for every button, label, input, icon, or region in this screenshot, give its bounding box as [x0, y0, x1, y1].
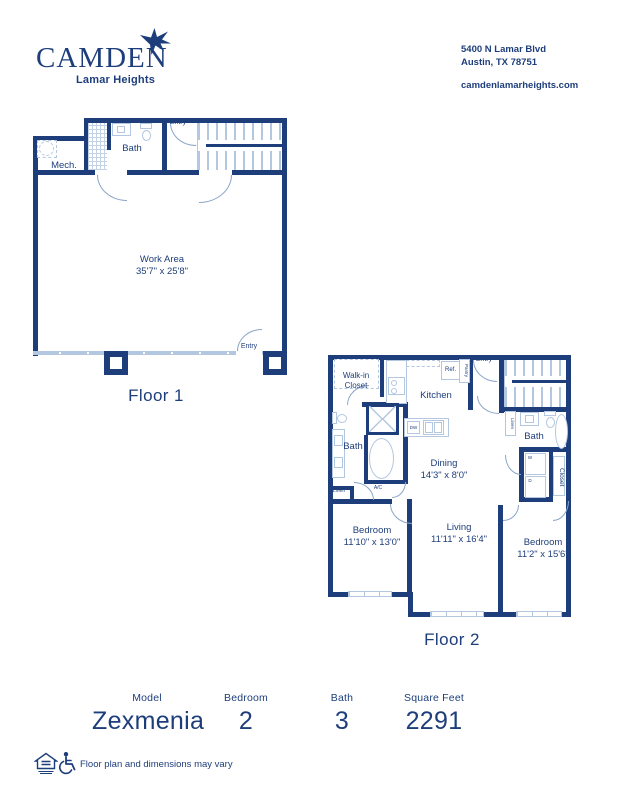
burner — [391, 388, 397, 394]
toilet-tank — [544, 411, 556, 416]
sink-basin — [334, 457, 343, 468]
washer-label: W — [526, 455, 534, 460]
bedroom-label: Bedroom 11'10" x 13'0" — [326, 525, 418, 548]
dining-dims: 14'3" x 8'0" — [404, 470, 484, 482]
window — [430, 611, 484, 617]
dining-name: Dining — [404, 458, 484, 470]
floor2-plan: Ref. Pantry DW Linen W D Closet — [0, 0, 618, 660]
floor-plan-sheet: CAMDEN Lamar Heights 5400 N Lamar Blvd A… — [0, 0, 618, 800]
bath-label: Bath — [338, 441, 368, 453]
pantry-label: Pantry — [460, 360, 469, 382]
stair-rail — [512, 380, 566, 383]
dining-label: Dining 14'3" x 8'0" — [404, 458, 484, 481]
toilet-bowl — [337, 414, 347, 423]
bedroom1-name: Bedroom — [326, 525, 418, 537]
door-arc — [503, 505, 519, 521]
kitchen-label: Kitchen — [404, 390, 468, 402]
sqft-value: 2291 — [392, 707, 476, 736]
burner — [391, 380, 397, 386]
door-arc — [477, 396, 499, 414]
door-arc — [505, 455, 521, 475]
bath-label: Bath — [306, 692, 378, 704]
bathtub — [369, 438, 394, 479]
wall — [566, 355, 571, 617]
bedroom1-dims: 11'10" x 13'0" — [326, 537, 418, 549]
summary-band: Model Zexmenia Bedroom 2 Bath 3 Square F… — [0, 688, 618, 748]
toilet-bowl — [546, 417, 555, 428]
bedroom-label: Bedroom — [206, 692, 286, 704]
bath-stat: Bath 3 — [306, 692, 378, 736]
walkin-line1: Walk-in — [330, 371, 382, 381]
bedroom2-dims: 11'2" x 15'6" — [500, 549, 586, 561]
floor2-title: Floor 2 — [400, 630, 504, 650]
equal-housing-icon — [34, 752, 58, 776]
bedroom2-name: Bedroom — [500, 537, 586, 549]
door-arc — [390, 504, 412, 524]
model-stat: Model Zexmenia — [92, 692, 202, 736]
door-arc — [392, 482, 406, 498]
shower-stall — [366, 403, 399, 435]
bathtub — [555, 414, 568, 449]
living-label: Living 11'11" x 16'4" — [414, 522, 504, 545]
sink-basin — [525, 415, 534, 423]
bedroom-label: Bedroom 11'2" x 15'6" — [500, 537, 586, 560]
model-label: Model — [92, 692, 202, 704]
bedroom-value: 2 — [206, 707, 286, 736]
window — [348, 591, 392, 597]
bath-label: Bath — [518, 431, 550, 443]
ac-closet-label: A/C — [368, 485, 388, 491]
accessibility-icon — [58, 751, 78, 775]
bath-value: 3 — [306, 707, 378, 736]
sink-basin — [425, 422, 433, 433]
sqft-stat: Square Feet 2291 — [392, 692, 476, 736]
dishwasher-label: DW — [407, 425, 420, 430]
bedroom-stat: Bedroom 2 — [206, 692, 286, 736]
dryer-label: D — [526, 478, 534, 483]
living-dims: 11'11" x 16'4" — [414, 534, 504, 546]
sqft-label: Square Feet — [392, 692, 476, 704]
refrigerator-label: Ref. — [441, 367, 460, 374]
closet-label: Closet — [553, 459, 565, 495]
entry-label: Entry — [470, 356, 498, 365]
model-value: Zexmenia — [92, 707, 202, 736]
sink-basin — [434, 422, 442, 433]
window — [516, 611, 562, 617]
linen-label: Linen — [329, 488, 349, 494]
disclaimer-text: Floor plan and dimensions may vary — [80, 759, 233, 770]
linen-label: Linen — [506, 413, 515, 435]
footer: Floor plan and dimensions may vary — [0, 748, 618, 788]
living-name: Living — [414, 522, 504, 534]
walkin-line2: Closet — [330, 381, 382, 391]
walkin-closet-label: Walk-in Closet — [330, 371, 382, 391]
